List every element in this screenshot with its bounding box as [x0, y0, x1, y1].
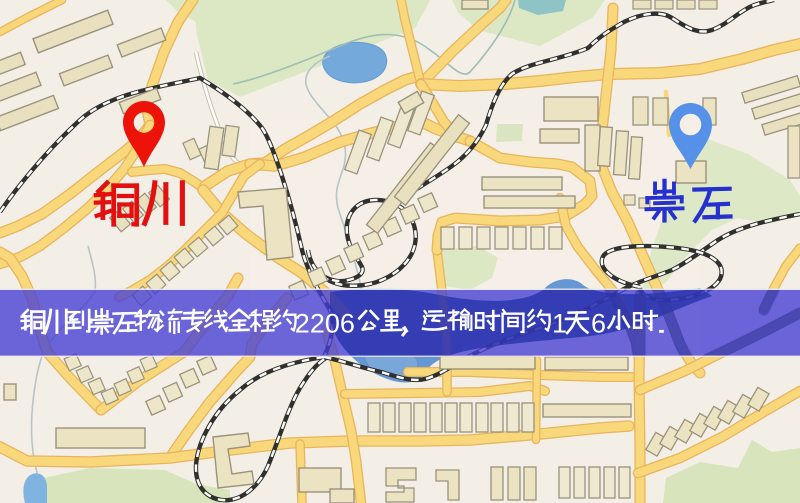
svg-text:1: 1: [552, 309, 567, 339]
svg-text:6: 6: [591, 309, 606, 339]
svg-text:2206: 2206: [295, 309, 355, 339]
